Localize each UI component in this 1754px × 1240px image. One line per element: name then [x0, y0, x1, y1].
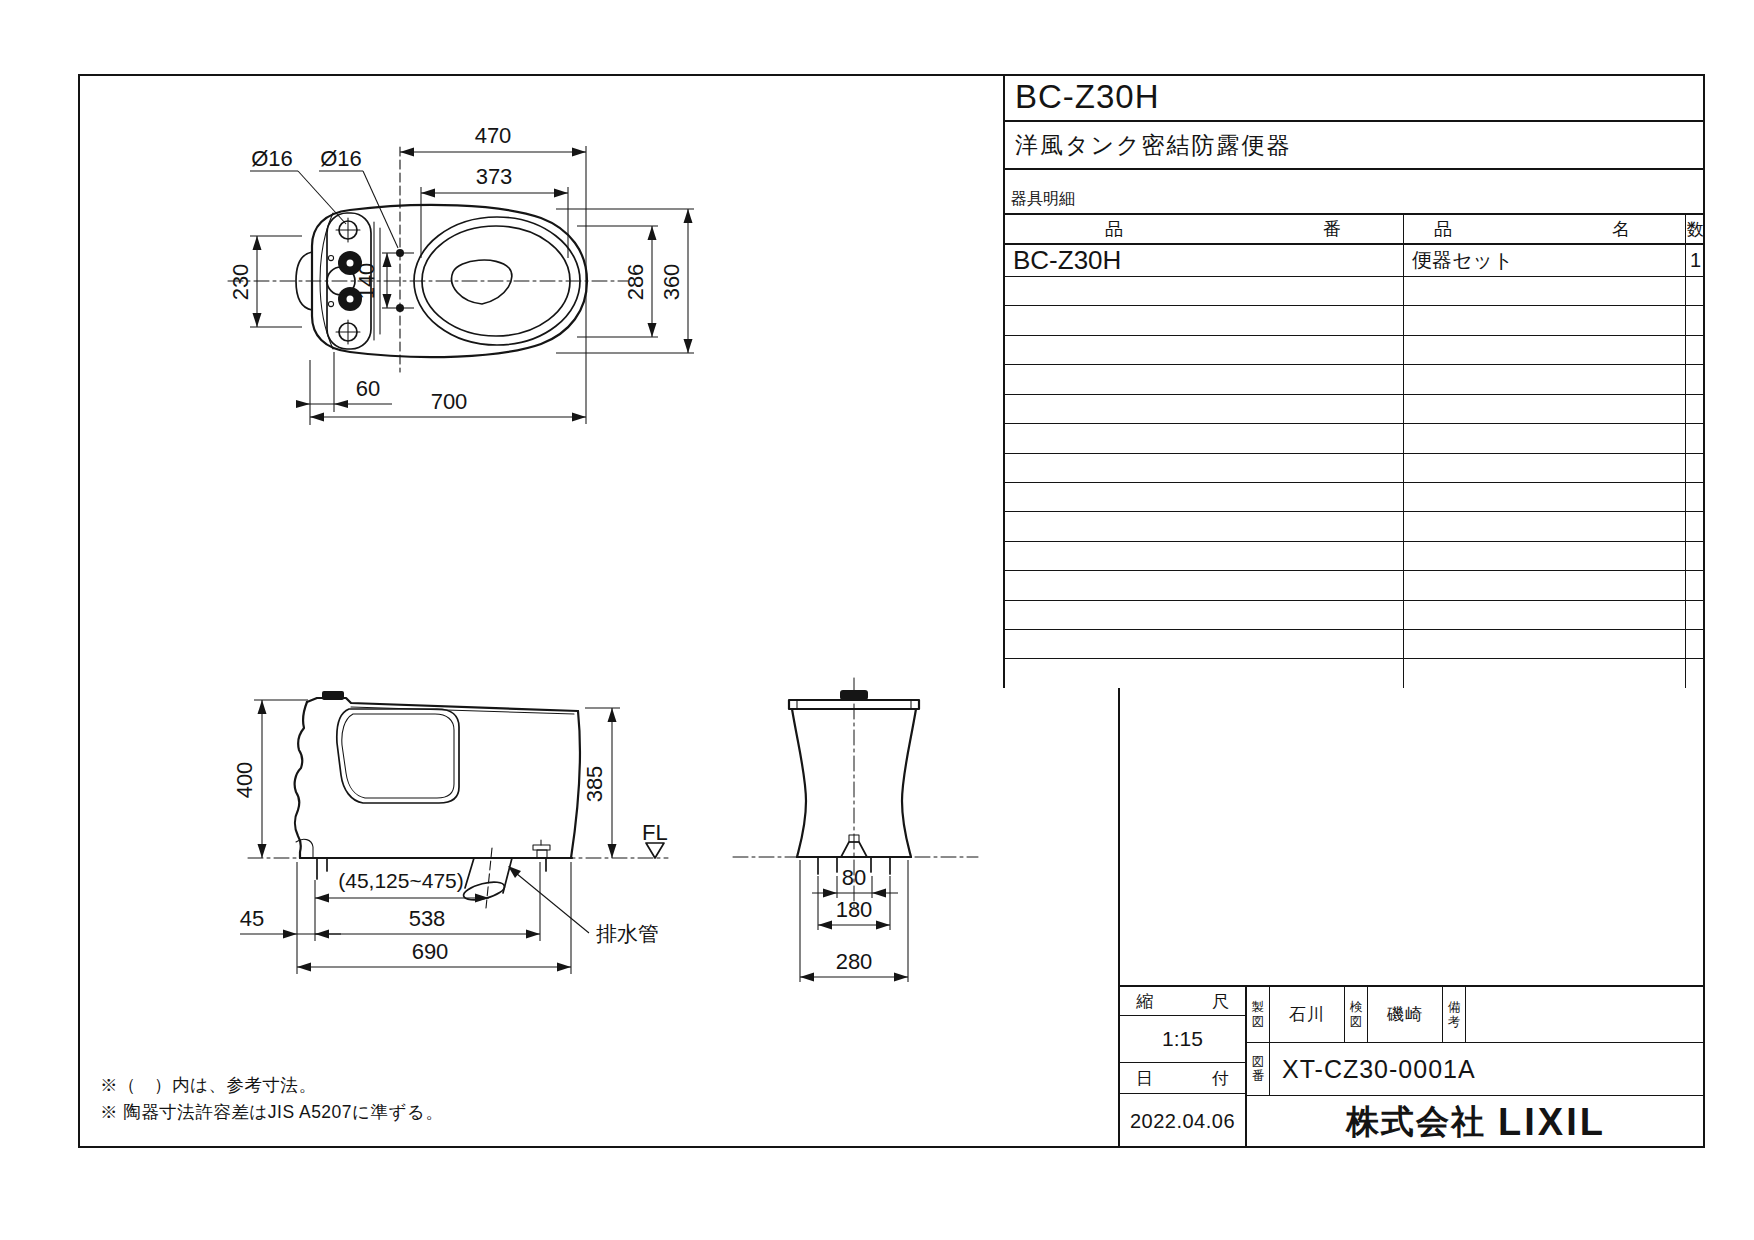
- remarks-label: 備考: [1443, 987, 1466, 1042]
- spring-top-hole: [347, 260, 354, 267]
- checked-by: 磯崎: [1368, 987, 1443, 1042]
- drawn-label-text: 製図: [1251, 1000, 1265, 1029]
- seat-opening-inner: [342, 714, 454, 798]
- drawn-by: 石川: [1270, 987, 1345, 1042]
- dim-180: 180: [836, 897, 873, 922]
- empty-cell: [1404, 395, 1686, 423]
- front-view: 80 180 280: [733, 678, 978, 982]
- drain-label: 排水管: [596, 922, 659, 945]
- spring-bottom-hole: [347, 296, 354, 303]
- empty-cell: [1686, 395, 1705, 423]
- parts-list-label: 器具明細: [1011, 189, 1075, 210]
- empty-cell: [1005, 659, 1404, 687]
- arrow: [608, 708, 617, 722]
- checked-label-text: 検図: [1349, 1000, 1363, 1029]
- leader-1: [298, 171, 346, 224]
- empty-cell: [1005, 454, 1404, 482]
- arrow: [315, 894, 329, 903]
- drain-leader: [511, 869, 589, 933]
- small-hole-1: [328, 255, 333, 260]
- model-row: BC-Z30H: [1005, 74, 1705, 122]
- company-row: 株式会社 LIXIL: [1247, 1096, 1705, 1148]
- header-part-no-char2: 番: [1323, 217, 1341, 241]
- table-row-empty: [1005, 424, 1705, 453]
- company-logo: LIXIL: [1498, 1101, 1606, 1144]
- date-value: 2022.04.06: [1120, 1094, 1245, 1148]
- empty-cell: [1005, 512, 1404, 540]
- empty-cell: [1686, 571, 1705, 599]
- back-edge: [295, 702, 307, 858]
- tank-cap-front: [840, 690, 868, 700]
- empty-cell: [1686, 336, 1705, 364]
- table-row-empty: [1005, 306, 1705, 335]
- info-block: 縮 尺 1:15 日 付 2022.04.06 製図 石川 検図 磯崎 備考: [1118, 688, 1705, 1148]
- empty-cell: [1404, 277, 1686, 305]
- arrow: [894, 973, 908, 982]
- scale-date-column: 縮 尺 1:15 日 付 2022.04.06: [1120, 987, 1247, 1148]
- dwg-no-label-text: 図番: [1251, 1055, 1265, 1084]
- table-row-empty: [1005, 454, 1705, 483]
- info-grid: 縮 尺 1:15 日 付 2022.04.06 製図 石川 検図 磯崎 備考: [1120, 985, 1705, 1148]
- parts-table: BC-Z30H 洋風タンク密結防露便器 器具明細 品 番 品 名 数 BC-Z3…: [1003, 74, 1705, 688]
- drain-end: [462, 879, 506, 904]
- arrow: [554, 189, 568, 198]
- staff-row: 製図 石川 検図 磯崎 備考: [1247, 987, 1705, 1043]
- arrow: [572, 413, 586, 422]
- arrow: [315, 930, 329, 939]
- date-label-char1: 日: [1136, 1067, 1153, 1090]
- water-spot: [452, 260, 512, 304]
- dim-700: 700: [431, 389, 468, 414]
- empty-cell: [1686, 306, 1705, 334]
- header-qty: 数: [1686, 215, 1705, 243]
- date-label-char2: 付: [1212, 1067, 1229, 1090]
- empty-cell: [1686, 424, 1705, 452]
- arrow: [526, 930, 540, 939]
- product-name: 洋風タンク密結防露便器: [1015, 130, 1292, 161]
- table-row-empty: [1005, 395, 1705, 424]
- arrow: [334, 400, 348, 408]
- dim-range: (45,125~475): [338, 869, 464, 892]
- dim-45: 45: [240, 906, 264, 931]
- empty-cell: [1686, 659, 1705, 687]
- empty-cell: [1005, 365, 1404, 393]
- arrow: [310, 413, 324, 422]
- table-row-empty: [1005, 336, 1705, 365]
- table-row-empty: [1005, 571, 1705, 600]
- front-edge: [571, 711, 580, 858]
- header-part-no-char1: 品: [1105, 217, 1123, 241]
- small-hole-2: [328, 301, 333, 306]
- arrow: [253, 313, 262, 327]
- empty-cell: [1005, 630, 1404, 658]
- scale-label: 縮 尺: [1120, 987, 1245, 1016]
- table-row-empty: [1005, 659, 1705, 687]
- arrow: [648, 323, 657, 337]
- table-row: BC-Z30H 便器セット 1: [1005, 245, 1705, 277]
- table-row-empty: [1005, 277, 1705, 306]
- arrow: [297, 963, 311, 972]
- scale-label-char1: 縮: [1136, 990, 1153, 1013]
- scale-label-char2: 尺: [1212, 990, 1229, 1013]
- empty-cell: [1686, 483, 1705, 511]
- arrow: [253, 236, 262, 250]
- model-number: BC-Z30H: [1015, 78, 1160, 116]
- dim-385: 385: [582, 766, 607, 803]
- empty-cell: [1005, 306, 1404, 334]
- fl-triangle: [646, 843, 664, 858]
- header-part-no: 品 番: [1005, 215, 1404, 243]
- empty-cell: [1686, 277, 1705, 305]
- arrow: [283, 930, 297, 939]
- empty-cell: [1404, 483, 1686, 511]
- arrow: [684, 209, 693, 223]
- empty-cell: [1404, 571, 1686, 599]
- drawn-label: 製図: [1247, 987, 1270, 1042]
- table-row-empty: [1005, 630, 1705, 659]
- remarks-label-text: 備考: [1447, 1000, 1461, 1029]
- product-name-row: 洋風タンク密結防露便器: [1005, 122, 1705, 170]
- empty-cell: [1404, 336, 1686, 364]
- date-label: 日 付: [1120, 1063, 1245, 1094]
- fitting-1: [533, 845, 550, 850]
- empty-cell: [1686, 365, 1705, 393]
- empty-cell: [1404, 542, 1686, 570]
- drain-wall-l: [465, 858, 474, 888]
- drawing-number-row: 図番 XT-CZ30-0001A: [1247, 1043, 1705, 1096]
- dim-690: 690: [412, 939, 449, 964]
- header-name-char1: 品: [1434, 217, 1452, 241]
- dim-470: 470: [475, 123, 512, 148]
- empty-cell: [1404, 365, 1686, 393]
- empty-cell: [1005, 601, 1404, 629]
- arrow: [383, 253, 392, 267]
- top-view: 470 373 Ø16 Ø16 230 140: [228, 123, 694, 425]
- parts-table-header: 品 番 品 名 数: [1005, 215, 1705, 245]
- dim-80: 80: [842, 865, 866, 890]
- body-left: [792, 709, 806, 857]
- cell-name: 便器セット: [1404, 245, 1686, 276]
- arrow: [818, 921, 832, 930]
- dim-280: 280: [836, 949, 873, 974]
- dim-373: 373: [476, 164, 513, 189]
- dim-400: 400: [232, 762, 257, 799]
- note-line-1: ※（ ）内は、参考寸法。: [100, 1072, 443, 1099]
- empty-cell: [1404, 512, 1686, 540]
- empty-cell: [1404, 454, 1686, 482]
- arrow: [557, 963, 571, 972]
- arrow: [258, 700, 267, 714]
- empty-cell: [1404, 659, 1686, 687]
- empty-cell: [1404, 306, 1686, 334]
- dim-dia16-1: Ø16: [251, 146, 293, 171]
- table-row-empty: [1005, 365, 1705, 394]
- empty-cell: [1686, 630, 1705, 658]
- arrow: [608, 844, 617, 858]
- arrow: [684, 339, 693, 353]
- dim-dia16-2: Ø16: [320, 146, 362, 171]
- drawing-sheet: 470 373 Ø16 Ø16 230 140: [0, 0, 1754, 1240]
- table-row-empty: [1005, 512, 1705, 541]
- empty-cell: [1686, 601, 1705, 629]
- fl-label: FL: [642, 820, 668, 845]
- parts-table-body: BC-Z30H 便器セット 1: [1005, 245, 1705, 688]
- dwg-no-value: XT-CZ30-0001A: [1270, 1055, 1476, 1084]
- empty-cell: [1005, 571, 1404, 599]
- arrow: [876, 921, 890, 930]
- empty-cell: [1005, 483, 1404, 511]
- dim-538: 538: [409, 906, 446, 931]
- empty-cell: [1005, 336, 1404, 364]
- empty-panel: [1120, 688, 1705, 985]
- arrow: [800, 973, 814, 982]
- arrow: [421, 189, 435, 198]
- empty-cell: [1686, 542, 1705, 570]
- table-row-empty: [1005, 601, 1705, 630]
- empty-cell: [1005, 542, 1404, 570]
- note-line-2: ※ 陶器寸法許容差はJIS A5207に準ずる。: [100, 1099, 443, 1126]
- empty-cell: [1005, 395, 1404, 423]
- body-right: [902, 709, 916, 857]
- empty-cell: [1005, 424, 1404, 452]
- arrow: [648, 226, 657, 240]
- dwg-no-label: 図番: [1247, 1043, 1270, 1095]
- arrow: [872, 889, 886, 898]
- dim-140: 140: [354, 263, 379, 300]
- header-name-char2: 名: [1612, 217, 1630, 241]
- parts-list-label-row: 器具明細: [1005, 170, 1705, 215]
- empty-cell: [1404, 424, 1686, 452]
- arrow: [572, 148, 586, 157]
- cell-qty: 1: [1686, 245, 1705, 276]
- dim-360: 360: [659, 264, 684, 301]
- table-row-empty: [1005, 542, 1705, 571]
- remarks-value: [1466, 987, 1705, 1042]
- company-prefix: 株式会社: [1346, 1100, 1486, 1145]
- dim-60: 60: [356, 376, 380, 401]
- footnotes: ※（ ）内は、参考寸法。 ※ 陶器寸法許容差はJIS A5207に準ずる。: [100, 1072, 443, 1126]
- arrow: [383, 294, 392, 308]
- dim-286: 286: [623, 264, 648, 301]
- checked-label: 検図: [1345, 987, 1368, 1042]
- seat-opening-outer: [337, 709, 459, 803]
- empty-cell: [1005, 277, 1404, 305]
- fitting-2: [537, 850, 547, 858]
- cell-part-no: BC-Z30H: [1005, 245, 1404, 276]
- staff-column: 製図 石川 検図 磯崎 備考 図番 XT-CZ30-0001A 株式会社 LIX…: [1247, 987, 1705, 1148]
- dim-230: 230: [228, 264, 253, 301]
- arrow: [258, 844, 267, 858]
- empty-cell: [1404, 630, 1686, 658]
- empty-cell: [1686, 454, 1705, 482]
- table-row-empty: [1005, 483, 1705, 512]
- arrow: [296, 400, 310, 408]
- side-view: FL 400 385 (45,125~475): [232, 691, 668, 974]
- scale-value: 1:15: [1120, 1016, 1245, 1063]
- bolt-cap-detail: [296, 839, 313, 857]
- empty-cell: [1404, 601, 1686, 629]
- header-name: 品 名: [1404, 215, 1686, 243]
- empty-cell: [1686, 512, 1705, 540]
- arrow: [400, 148, 414, 157]
